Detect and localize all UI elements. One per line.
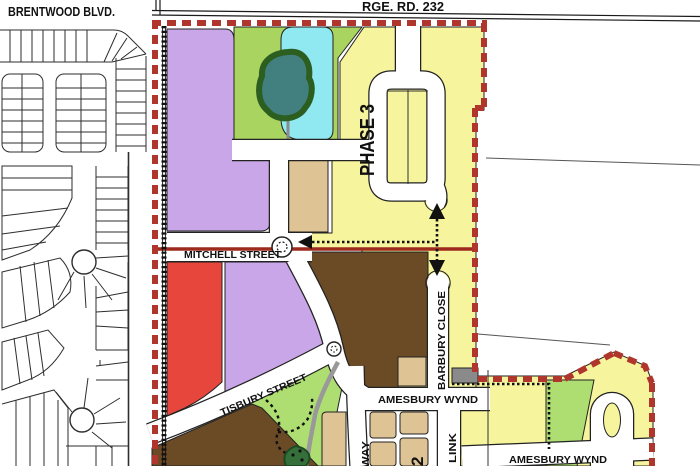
subdivision-plan-map: BRENTWOOD BLVD. RGE. RD. 232 MITCHELL ST… [0, 0, 700, 466]
plat-mid-right-column [96, 166, 128, 250]
parcel-tan-way [322, 412, 346, 466]
parcel-tan-grid-2 [400, 412, 428, 434]
existing-subdivision-plat [0, 30, 146, 466]
stormwater-pond [259, 52, 312, 119]
label-amesbury-wynd-1: AMESBURY WYND [378, 394, 478, 406]
plat-mid-fan-block [2, 166, 72, 260]
plat-block-a-lots [2, 74, 43, 152]
parcel-tan-north [288, 158, 328, 232]
parcel-tan-barbury [398, 357, 426, 386]
plat-corner-fan [98, 30, 146, 62]
label-phase-2-partial: 2 [408, 457, 427, 466]
plat-culdesac-bulb-1 [72, 250, 96, 274]
parcel-red [167, 262, 222, 416]
survey-line-upper [486, 158, 700, 165]
road-island [604, 403, 621, 437]
plat-left-lower-block [2, 258, 71, 328]
survey-line-lower [478, 334, 610, 345]
parcel-tan-grid-1 [370, 412, 396, 438]
label-amesbury-wynd-2: AMESBURY WYND [509, 454, 607, 466]
plat-block-sw [2, 330, 64, 390]
label-way-partial: WAY [360, 441, 372, 466]
parcel-tan-grid-3 [370, 442, 396, 466]
label-barbury-close: BARBURY CLOSE [436, 291, 448, 390]
plat-bottom-block [2, 390, 68, 466]
plat-lower-right-fan [96, 262, 128, 350]
plat-block-b-lots [56, 74, 106, 152]
label-rge-rd-232: RGE. RD. 232 [362, 0, 444, 14]
plat-ne-column [116, 56, 146, 152]
label-phase-3: PHASE 3 [356, 104, 379, 176]
label-brentwood-blvd: BRENTWOOD BLVD. [8, 5, 115, 19]
plat-culdesac-bulb-2 [70, 408, 94, 432]
plat-top-block [0, 30, 112, 62]
railroad-dotted-line [163, 26, 166, 466]
roundabout-tisbury [327, 342, 341, 356]
label-mitchell-street: MITCHELL STREET [184, 250, 281, 261]
label-link-partial: LINK [448, 432, 459, 463]
